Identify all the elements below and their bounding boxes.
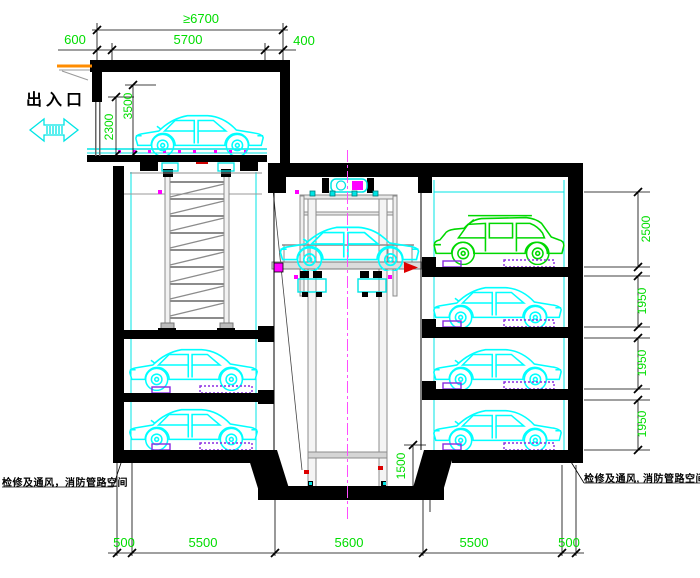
suv-right-level1 — [434, 216, 564, 265]
car-left-level2 — [130, 350, 257, 391]
dim-door-height: 2300 — [102, 110, 116, 144]
entrance-left-wall — [92, 60, 102, 102]
entrance-right-wall — [280, 60, 290, 163]
dim-top-mid: 5700 — [163, 33, 213, 47]
dim-bottom-4: 5500 — [449, 536, 499, 550]
right-slab-2 — [422, 327, 583, 338]
entrance-label: 出入口 — [26, 86, 86, 110]
entrance-roof — [90, 60, 290, 72]
left-bottom-slab — [113, 450, 253, 463]
cad-drawing-svg — [0, 0, 700, 578]
pit-right-wall — [410, 450, 455, 498]
dim-level-1: 2500 — [639, 212, 653, 246]
dim-top-left: 600 — [55, 33, 95, 47]
dim-bottom-1: 500 — [104, 536, 144, 550]
left-slab-1 — [113, 330, 274, 339]
right-outer-wall — [568, 163, 583, 463]
structure-walls — [87, 60, 583, 500]
dim-overall-width: ≥6700 — [171, 12, 231, 26]
entrance-door — [95, 102, 101, 156]
lift-cage — [272, 180, 397, 487]
parking-section-drawing: ≥6700 600 5700 400 2300 3500 2500 1950 1… — [0, 0, 700, 578]
left-service-note: 检修及通风，消防管路空间 — [2, 474, 128, 489]
hoist-cable — [272, 180, 302, 470]
ref-marker — [158, 190, 162, 194]
dim-bottom-3: 5600 — [324, 536, 374, 550]
entrance-canopy — [57, 66, 92, 80]
right-bottom-slab — [452, 450, 583, 463]
dim-level-4: 1950 — [635, 407, 649, 441]
lattice-tower — [158, 169, 235, 332]
dim-clear-height: 3500 — [121, 89, 135, 123]
dim-top-right: 400 — [284, 34, 324, 48]
dim-level-3: 1950 — [635, 346, 649, 380]
entrance-arrow-icon — [30, 119, 78, 141]
left-slab-2 — [113, 393, 274, 402]
right-service-note: 检修及通风, 消防管路空间 — [584, 470, 700, 485]
right-slab-1 — [422, 267, 583, 277]
ground-slab — [268, 163, 582, 177]
dim-bottom-2: 5500 — [178, 536, 228, 550]
ref-marker — [295, 190, 299, 194]
dim-level-2: 1950 — [635, 284, 649, 318]
car-right-level4 — [434, 411, 561, 452]
left-outer-wall — [113, 166, 124, 463]
car-right-level2 — [434, 288, 561, 329]
right-slab-3 — [422, 389, 583, 400]
dim-bottom-5: 500 — [549, 536, 589, 550]
car-right-level3 — [434, 350, 561, 391]
dim-pit-depth: 1500 — [394, 449, 408, 483]
car-left-level3 — [130, 410, 257, 451]
